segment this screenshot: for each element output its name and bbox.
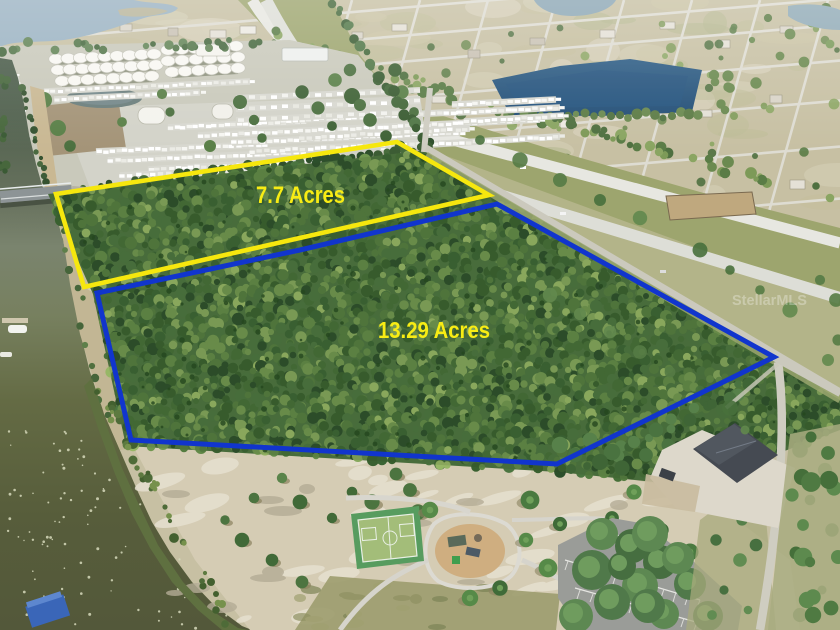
svg-text:7.7 Acres: 7.7 Acres bbox=[256, 182, 345, 209]
svg-text:13.29 Acres: 13.29 Acres bbox=[378, 317, 490, 343]
svg-text:StellarMLS: StellarMLS bbox=[732, 293, 807, 309]
